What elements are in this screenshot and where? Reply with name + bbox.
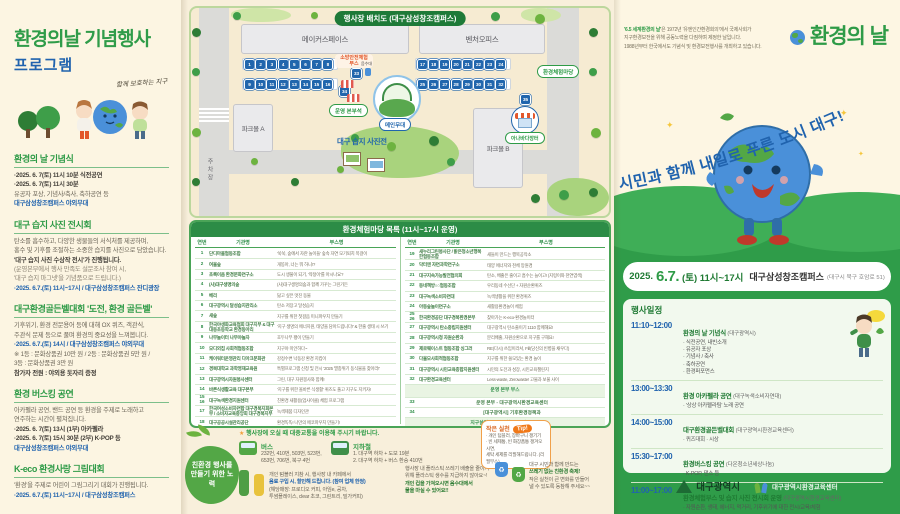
schedule-content: 환경 아카펠라 공연 (대구녹색소비자연대)· '상상 아카펠라팀' 노래 공연 [683,384,883,412]
cell-number: 11 [195,356,209,361]
market-label: 아나바다장터 [505,132,545,144]
bus-lines: 232번, 410번, 503번, 523번,653번, 706번, 북구 4번 [261,451,322,466]
cell-org: 새숲 [209,313,277,318]
cell-org: 베리 [209,293,277,298]
section-line: 아카펠라 공연, 밴드 공연 등 환경을 주제로 노래하고 [14,406,169,415]
building-label: 벤처오피스 [466,34,499,45]
section-line: '대구 습지 마그넷'을 기념품으로 드립니다.) [14,274,169,283]
booth-number-chip: 13 [289,79,300,90]
cell-org: 나무놀이터 나무야놀자 [209,335,277,340]
tree-icon [233,12,241,20]
event-info-panel: '6.5 세계환경의 날'은 1972년 '유엔인간환경회의'에서 국제사회가 … [614,0,900,514]
table-row: 23대구녹색소비자연대녹색생활을 위한 환경퀴즈 [405,292,605,302]
section-line: 대구삼성창조캠퍼스 야외무대 [14,199,169,208]
subway-label: 지하철 [353,441,423,451]
booth-list-card: 환경체험마당 목록 (11시~17시 운영) 연번 기관명 부스명 1단디마을협… [189,220,611,428]
event-bullet: · 축하공연 [683,362,883,369]
tree-icon [192,128,201,137]
tree-icon [291,178,299,186]
table-header: 연번 기관명 부스명 [405,239,605,248]
schedule-row: 15:30~17:00환경버스킹 공연 (다온청소년세상나눔)· K-POP, … [631,448,883,482]
tree-icon [535,14,545,24]
section-heading: 대구 습지 사진 전시회 [14,218,169,234]
cell-org: 한국여성소비자연합 대구경북지회본부 / 소비자교육중앙회 대구경북지부 [209,406,277,416]
people-icon [754,480,768,493]
subway-icon [331,441,349,455]
booth-number-chip: 6 [300,59,311,70]
event-title: 환경체험부스 및 습지 사진 전시회 운영 [683,495,782,502]
section-line: ·2025. 6. 7(토) 11시 30분 [14,180,169,189]
section-heading: 환경 버스킹 공연 [14,387,169,403]
bus-line: 653번, 706번, 북구 4번 [261,458,322,465]
table-row: 19새누리그린봉사단 / 밝은청소년행복한협동조합새들이 만드는 행복공작소 [405,249,605,260]
cell-booth: '쑥쑥, 숲에서 자란 놀이들' 숲속 자연 모기퇴치 목걸이 [277,251,396,256]
section-line: '환경'을 주제로 어린이 그림그리기 대회가 진행됩니다. [14,481,169,490]
table-header: 연번 기관명 부스명 [195,239,396,248]
table-row: 6대구광역시 달성습지관리소탄소 저장고 달성습지 [195,301,396,311]
eco-effort-blob: 친환경 행사를 만들기 위한 노력 [185,446,239,504]
transit-note-text: 행사장에 오실 때 대중교통을 이용해 주시기 바랍니다. [246,431,379,437]
wetland-expo-label: 대구 습지 사진전 [337,136,387,147]
schedule-entry: 대구환경골든벨대회 (대구광역시환경교육센터)· 퀴즈대회 · 시상 [683,418,883,444]
table-row: 31대구광역시 시민교육종합지원센터시민의 도전과 성장, 시민교육챌린지 [405,364,605,374]
headline-arc: 시민과 함께 내일로 푸른 도시 대구! [614,78,900,198]
table-row: 2여울숲개똥아, 너는 뭐 하니!? [195,259,396,269]
subway-lines: 1. 대구역 하차 + 도보 19분2. 대구역 하차 + 버스 환승 410번 [353,451,423,466]
cell-booth: 개똥아, 너는 뭐 하니!? [277,262,396,267]
cell-number: 12 [195,367,209,372]
schedule-row: 14:00~15:00대구환경골든벨대회 (대구광역시환경교육센터)· 퀴즈대회… [631,414,883,448]
booth-number-chip: 2 [255,59,266,70]
program-panel: 환경의날 기념행사 프로그램 함께 보호하는 지구 환경의 날 기념식·2025… [0,0,181,514]
cell-org: (사)대구생명의숲 [209,282,277,287]
cell-number: 31 [405,367,419,372]
cell-number: 21 [405,273,419,278]
cell-number: 9 [195,335,209,340]
table-row: 25 26한국환경공단 대구경북환경본부찾아가는 K-eco-환경놀이터 [405,312,605,323]
section-line: 대구삼성창조캠퍼스 야외무대 [14,444,169,453]
table-row: 1단디마을협동조합'쑥쑥, 숲에서 자란 놀이들' 숲속 자연 모기퇴치 목걸이 [195,249,396,259]
svg-text:시민과 함께 내일로 푸른 도시 대구!: 시민과 함께 내일로 푸른 도시 대구! [617,108,846,194]
sparkle-icon: ✦ [858,150,864,158]
section-line: 유공자 포상, 기념사/축사, 축하공연 등 [14,190,169,199]
cell-number: 15 16 [195,395,209,405]
cell-org: 대구광역시 달성습지관리소 [209,303,277,308]
cell-booth: '지구 생명의 에너지원, 태양을 담아드립니다!' & 한줄 생태 시 쓰기 [277,324,396,329]
tip-header: 작은 실천 Tip! [486,424,546,433]
market-icon [511,106,539,134]
section-line: 참가자 전원 : 야외용 돗자리 증정 [14,369,169,378]
crosswalk [199,108,229,122]
event-bullet: · K-POP, 댄스 등 [683,471,883,478]
cell-booth: 우리동네 수선단 + 자원순환퀴즈 [487,283,605,288]
zero-waste-message: ♻ ♻ 대구 시민과 함께 만드는쓰레기 없는 친환경 축제!작은 실천이 큰 … [495,462,590,492]
section-heading: K-eco 환경사랑 그림대회 [14,462,169,478]
booth-table-left: 연번 기관명 부스명 1단디마을협동조합'쑥쑥, 숲에서 자란 놀이들' 숲속 … [191,237,400,424]
cell-number: 20 [405,263,419,268]
market-shopfront [518,118,532,128]
event-bullet: · '상상 아카펠라팀' 노래 공연 [683,403,883,410]
section-line: 기후위기, 환경 전문용어 등에 대해 OX 퀴즈, 객관식, [14,321,169,330]
booth-number-chip: 27 [439,79,450,90]
schedule-time: 14:00~15:00 [631,418,683,446]
event-title: 환경버스킹 공연 [683,461,724,468]
map-title-badge: 행사장 배치도 (대구삼성창조캠퍼스) [335,11,466,26]
booth-number-chip: 29 [462,79,473,90]
booth-number-chip: 9 [244,79,255,90]
cell-booth: 호두나무 팽이 만들기 [277,335,396,340]
event-datebar: 2025. 6.7. (토) 11시~17시 대구삼성창조캠퍼스 (대구시 북구… [623,262,891,291]
cell-booth: 그린, 대구 자원봉사와 함께! [277,377,396,382]
parking-label: 주차장 [205,158,214,182]
schedule-content: 환경버스킹 공연 (다온청소년세상나눔)· K-POP, 댄스 등 [683,452,883,480]
tip-lines: · 개인 텀블러, 장바구니 챙기기· 빈 세제통, 빈 화장품통 챙겨오시면,… [486,433,546,465]
section-line: ·2025. 6.7.(토) 14시 / 대구삼성창조캠퍼스 야외무대 [14,340,169,349]
cell-number: 1 [195,251,209,256]
building-label: 파크몰 A [242,123,265,133]
section-line: 주관식 문제 등으로 풀며 환경의 중요성을 느껴봅니다. [14,331,169,340]
cell-org: 대구환경교육센터 [419,377,487,382]
table-row: 3초록이음 환경문화연구소도시 생물이 되기, '딱정이'를 아시나요? [195,270,396,280]
photo-easel [367,158,385,172]
cell-number: 34 [405,410,419,415]
booth-number-chip: 16 [322,79,333,90]
water-note: 행사장 내 플라스틱 쓰레기 배출을 줄이기위해 플라스틱 생수를 지급하지 않… [405,466,489,496]
headline-text: 시민과 함께 내일로 푸른 도시 대구! [617,108,846,194]
booth-number-chip: 11 [266,79,277,90]
cell-booth: 도시 생물이 되기, '딱정이'를 아시나요? [277,272,396,277]
event-title: 대구환경골든벨대회 [683,427,734,434]
cell-booth: 대구광역시 탄소줄이기 1110 함께해요! [487,325,605,330]
table-row: 5베리닮고 싶은 멋진 동물 [195,291,396,301]
schedule-time: 13:00~13:30 [631,384,683,412]
table-row: 27대구광역시 탄소중립지원센터대구광역시 탄소줄이기 1110 함께해요! [405,323,605,333]
table-row: 18대구공공시설관리공단환경똑똑! 나만의 에코파우치 만들기! [195,417,396,427]
cell-booth: RE(다시) 쓰임이라서, Fill(당신의 빈병을 채우다) [487,346,605,351]
bus-icon [239,441,257,455]
cell-number: 10 [195,346,209,351]
schedule-time: 11:10~12:00 [631,321,683,378]
table-row: 9나무놀이터 나무야놀자호두나무 팽이 만들기 [195,333,396,343]
cell-number: 5 [195,293,209,298]
intro-line: 은 1972년 '유엔인간환경회의'에서 국제사회가 [661,27,751,33]
tumbler-note: 개인 텀블러 지참 시, 행사장 내 카페에서음료 구입 시, 할인해 드립니다… [239,470,366,502]
schedule-row: 13:00~13:30환경 아카펠라 공연 (대구녹색소비자연대)· '상상 아… [631,380,883,414]
cell-booth: 친환경 새활용(업사이클) 체험 프로그램 [277,398,396,403]
building-makerspace: 메이커스페이스 [241,24,409,54]
cell-org: 케이워터운영관리 디아크문화관 [209,356,277,361]
table-row: 21대구지속가능발전협의회탄소, 배출은 줄이고 흡수는 늘이고! (지렁이와 … [405,271,605,281]
cell-org: 대구광역시 시민교육종합지원센터 [419,367,487,372]
cell-booth: '지구를 위한 올바른 식생활' 퀴즈도 풀고 지구도 지키자! [277,387,396,392]
cell-booth: 녹색제품 디자인관 [277,409,396,414]
table-row: 8한국야생화교육협회 대구지부 & 대구대동초등학교 환경동아리'지구 생명의 … [195,322,396,333]
experience-zone-label: 환경체험마당 [537,65,579,78]
booth-table: 연번 기관명 부스명 1단디마을협동조합'쑥쑥, 숲에서 자란 놀이들' 숲속 … [191,237,609,424]
booth-number-chip: 20 [451,59,462,70]
event-head: 환경버스킹 공연 (다온청소년세상나눔) [683,452,883,471]
table-row: 24아동숲놀이연구소새활용환경놀이 체험 [405,302,605,312]
globe-icon [790,30,805,45]
tree-icon [447,158,455,166]
event-venue: 대구삼성창조캠퍼스 [749,270,824,283]
tent-icon [341,80,354,88]
subway-info: 지하철 1. 대구역 하차 + 도보 19분2. 대구역 하차 + 버스 환승 … [331,441,423,466]
footer-logos: 대구광역시 대구광역시환경교육센터 [614,479,900,493]
cell-number: 27 [405,325,419,330]
table-rows-left: 1단디마을협동조합'쑥쑥, 숲에서 자란 놀이들' 숲속 자연 모기퇴치 목걸이… [195,249,396,428]
cell-number: 33 [405,400,419,405]
environment-day-logo: 환경의 날 [790,20,888,50]
cell-booth: 찾아가는 K-eco-환경놀이터 [487,315,605,320]
photo [370,161,383,168]
tumbler-line: 투썸플레이스, clear 초코, 그린트리, 밀가커피) [269,494,366,501]
program-section: 환경 버스킹 공연아카펠라 공연, 밴드 공연 등 환경을 주제로 노래하고연주… [14,387,169,453]
environment-day-brochure: 환경의날 기념행사 프로그램 함께 보호하는 지구 환경의 날 기념식·2025… [0,0,900,514]
cell-number: 13 [195,377,209,382]
program-section: 환경의 날 기념식·2025. 6. 7(토) 11시 10분 식전공연·202… [14,152,169,209]
subway-line: 2. 대구역 하차 + 버스 환승 410번 [353,458,423,465]
cell-number: 24 [405,304,419,309]
cell-org: 대구녹색소비자연대 [419,294,487,299]
tree-icon [387,142,396,151]
table-row: 32대구환경교육센터Less-waste, Zerowaste! 고물과 보물 … [405,375,605,385]
table-row: 22동네책방○○협동조합우리동네 수선단 + 자원순환퀴즈 [405,281,605,291]
cell-number: 3 [195,272,209,277]
event-title: 환경 아카펠라 공연 [683,393,732,400]
section-line: 홍수 및 기후를 조절하는 소중한 습지를 사진으로 담았습니다. [14,246,169,255]
booth-number-chip: 26 [428,79,439,90]
table-row: 17한국여성소비자연합 대구경북지회본부 / 소비자교육중앙회 대구경북지부녹색… [195,406,396,417]
booth-number-chip: 15 [311,79,322,90]
mountain-icon [676,480,692,493]
daegu-city-logo: 대구광역시 [676,479,740,493]
cell-booth: 탄소 저장고 달성습지 [277,303,396,308]
tree-icon [311,12,318,19]
cell-booth: 지구를 위한 첫걸음 미니파우치 만들기 [277,314,396,319]
booth-number-chip: 17 [417,59,428,70]
cell-org: 새누리그린봉사단 / 밝은청소년행복한협동조합 [419,249,487,259]
booth-number-chip: 18 [428,59,439,70]
booth-number-chip: 14 [300,79,311,90]
tree-icon [531,194,540,203]
section-line: ·2025. 6. 7(토) 13시 (1부) 아카펠라 [14,425,169,434]
kids-earth-illustration: 함께 보호하는 지구 [14,77,169,143]
section-line: ※ 1등 : 문화상품권 10만 원 / 2등 : 문화상품권 5만 원 / [14,350,169,359]
tree-icon [589,188,598,197]
tree-icon [429,136,439,146]
col-org: 기관명 [209,239,277,246]
map-and-booths-panel: 행사장 배치도 (대구삼성창조캠퍼스) 메이커스페이스 벤처오피스 파크몰 A … [181,0,614,514]
main-stage-illustration [373,75,421,123]
intro-emphasis: '6.5 세계환경의 날' [624,27,661,33]
section-heading: 대구환경골든벨대회 '도전, 환경 골든벨' [14,302,169,318]
cell-org: 동네책방○○협동조합 [419,283,487,288]
event-org: (대구광역시환경교육센터) [782,496,842,502]
col-org: 기관명 [419,239,487,246]
daegu-city-label: 대구광역시 [696,479,740,493]
cell-number: 14 [195,387,209,392]
photo-easel [343,152,361,166]
cell-org: 경북대학교 과학영재교육원 [209,366,277,371]
cell-booth: 태양 에너지와 천체 망원경 [487,263,605,268]
cell-number: 7 [195,314,209,319]
tree-icon [192,178,200,186]
booth-number-chip: 5 [289,59,300,70]
sparkle-icon: ✦ [666,120,674,131]
booth-number-chip: 30 [473,79,484,90]
section-heading: 환경의 날 기념식 [14,152,169,168]
environment-center-logo: 대구광역시환경교육센터 [754,480,838,493]
cell-number: 4 [195,282,209,287]
tumbler-line: 음료 구입 시, 할인해 드립니다. (참여 업체 한정) [269,479,366,486]
cell-number: 30 [405,356,419,361]
event-bullet: · 퀴즈대회 · 시상 [683,437,883,444]
hq-label: 운영 본부석 [329,104,368,117]
cell-number: 19 [405,252,419,257]
water-station-icon [365,68,371,76]
cell-number: 23 [405,294,419,299]
col-booth: 부스명 [277,239,396,246]
booth-list-title: 환경체험마당 목록 (11시~17시 운영) [191,222,609,237]
cell-number: 2 [195,262,209,267]
booth-number-chip: 3 [266,59,277,70]
cell-number: 29 [405,346,419,351]
zero-waste-lines: 대구 시민과 함께 만드는쓰레기 없는 친환경 축제!작은 실천이 큰 변화를 … [529,462,590,492]
zero-waste-line: 쓰레기 없는 친환경 축제! [529,469,590,476]
cell-booth: Less-waste, Zerowaste! 고물과 보물 사이 [487,377,605,382]
cell-number: 25 26 [405,312,419,322]
booth-number-chip: 33 [351,68,362,79]
water-station-label: 음수대 [361,61,372,67]
col-number: 연번 [195,239,209,246]
program-section: 대구환경골든벨대회 '도전, 환경 골든벨'기후위기, 환경 전문용어 등에 대… [14,302,169,378]
event-bullet: · 환경퍼포먼스 [683,369,883,376]
program-sections: 환경의 날 기념식·2025. 6. 7(토) 11시 10분 식전공연·202… [14,152,169,500]
cell-span: 운영 본부 - 대구광역시환경교육센터 [419,399,605,406]
tree-icon [589,68,597,76]
cell-booth: 녹색생활을 위한 환경퀴즈 [487,294,605,299]
event-day: 6.7. [656,268,679,285]
transit-note: ★ 행사장에 오실 때 대중교통을 이용해 주시기 바랍니다. [239,428,379,437]
cell-booth: 분리배출, 자원순환으로 지구를 구해요! [487,335,605,340]
brochure-title: 환경의날 기념행사 [14,30,169,50]
cell-booth: 특별프로그램 신청 및 전시 '2025 멸종위기 동식물을 찾아라!' [277,366,396,371]
tip-line: · 빈 세제통, 빈 화장품통 챙겨오시면, [486,439,546,452]
tent-icon [347,94,360,102]
building-label: 메이커스페이스 [302,34,348,45]
event-head: 대구환경골든벨대회 (대구광역시환경교육센터) [683,418,883,437]
program-section: K-eco 환경사랑 그림대회'환경'을 주제로 어린이 그림그리기 대회가 진… [14,462,169,500]
cell-org: 한국야생화교육협회 대구지부 & 대구대동초등학교 환경동아리 [209,322,277,332]
intro-line: 지구환경보전을 위해 공동노력을 다짐하며 제정한 날입니다. [624,35,741,41]
table-rows-right: 19새누리그린봉사단 / 밝은청소년행복한협동조합새들이 만드는 행복공작소20… [405,249,605,428]
tumbler-icon [239,470,249,496]
cell-org: 대구녹색환경지원센터 [209,398,277,403]
cell-span: [대구광역시] 기후환경정책과 [419,409,605,416]
table-row: 13대구광역시자원봉사센터그린, 대구 자원봉사와 함께! [195,375,396,385]
table-row: 4(사)대구생명의숲(사)대구생명의숲과 함께 가꾸는 그린가든 [195,280,396,290]
stage-grass [379,99,415,117]
table-row: 12경북대학교 과학영재교육원특별프로그램 신청 및 전시 '2025 멸종위기… [195,364,396,374]
event-org: (대구녹색소비자연대) [732,394,782,400]
event-time: (토) 11시~17시 [682,270,743,284]
tree-icon [589,28,598,37]
tip-badge: Tip! [512,424,532,434]
trash-bag-icon: ♻ [495,462,508,477]
cell-org: 제로웨이스트 협동조합 싱그러 [419,346,487,351]
tree-icon [591,128,601,138]
intro-line: 1988년부터 한국에서도 기념식 및 환경보전행사를 개최하고 있습니다. [624,44,761,50]
booth-number-chip: 32 [495,79,506,90]
booth-number-chip: 7 [311,59,322,70]
bus-label: 버스 [261,441,322,451]
building-parkmall-a: 파크몰 A [233,104,273,152]
photo [346,155,359,162]
cell-booth: 탄소, 배출은 줄이고 흡수는 늘이고! (지렁이와 천연염색) [487,273,605,278]
cell-booth: 새활용환경놀이 체험 [487,304,605,309]
section-line: ·2025. 6. 7(토) 15시 30분 (2부) K-POP 등 [14,434,169,443]
cell-org: 초록이음 환경문화연구소 [209,272,277,277]
section-line: (운영본부에서 행사 만족도 설문조사 참여 시, [14,265,169,274]
booth-number-chip: 19 [439,59,450,70]
col-booth: 부스명 [487,239,605,246]
environment-center-label: 대구광역시환경교육센터 [772,481,838,491]
cell-org: 대구광역시청 자원순환과 [419,335,487,340]
event-bullet: · 자원순환, 생태, 에너지, 먹거리, 기후위기에 대한 전시/교육/체험 [683,505,883,512]
event-org: (대구광역시) [726,331,756,337]
cell-number: 32 [405,377,419,382]
cell-booth: 지구야 미안하다~ [277,346,396,351]
bus-info: 버스 232번, 410번, 503번, 523번,653번, 706번, 북구… [239,441,322,466]
section-line: '대구 습지 사진 수상작 전시'가 진행됩니다. [14,256,169,265]
cell-booth: 환경똑똑! 나만의 에코파우치 만들기! [277,420,396,425]
kids-earth-drawing [14,85,169,143]
cell-number: 17 [195,409,209,414]
building-label: 파크몰 B [487,143,510,153]
table-row: 14바른식생활교육 대구본부'지구를 위한 올바른 식생활' 퀴즈도 풀고 지구… [195,385,396,395]
tree-icon [337,166,344,173]
cell-number: 28 [405,336,419,341]
grass-patch [547,178,609,216]
table-row: 7새숲지구를 위한 첫걸음 미니파우치 만들기 [195,311,396,321]
table-row: 11케이워터운영관리 디아크문화관강정수변 낙동강 환경 지킴이 [195,354,396,364]
tree-icon [192,28,201,37]
booth-number-chip: 28 [451,79,462,90]
cell-number: 8 [195,325,209,330]
section-line: 탄소를 흡수하고, 다양한 생물들의 서식처를 제공하며, [14,237,169,246]
cell-booth: (사)대구생명의숲과 함께 가꾸는 그린가든 [277,282,396,287]
water-line: 물을 마실 수 있어요!! [405,488,489,495]
tree-icon [251,158,258,165]
booth-number-chip: 12 [278,79,289,90]
cell-org: 다울모사회적협동조합 [419,356,487,361]
schedule-time: 15:30~17:00 [631,452,683,480]
table-row: 29제로웨이스트 협동조합 싱그러RE(다시) 쓰임이라서, Fill(당신의 … [405,344,605,354]
star-icon: ★ [239,431,244,437]
cell-booth: 지구를 위한 쓸모있는 환경 놀이 [487,356,605,361]
schedule-entry: 환경버스킹 공연 (다온청소년세상나눔)· K-POP, 댄스 등 [683,452,883,478]
tumbler-icon [254,474,264,496]
main-stage-label: 메인무대 [379,118,411,131]
table-row: 10모디외집 사회적협동조합지구야 미안하다~ [195,343,396,353]
sparkle-icon: ✦ [840,108,848,119]
table-row: 34[대구광역시] 기후환경정책과 [405,408,605,418]
booth-number-chip: 10 [255,79,266,90]
cell-number: 6 [195,303,209,308]
cheering-boy-illustration [846,308,886,360]
cell-org: 대구광역시 탄소중립지원센터 [419,325,487,330]
